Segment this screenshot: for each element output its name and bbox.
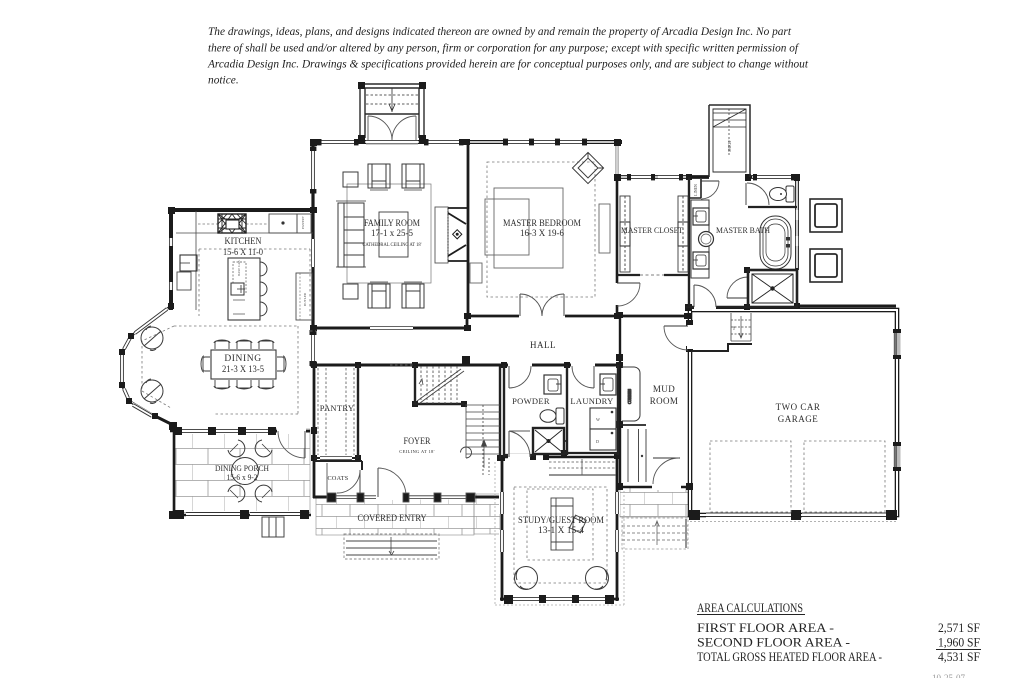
svg-text:DINING PORCH: DINING PORCH [215, 463, 269, 473]
svg-text:W: W [596, 417, 600, 422]
svg-text:FIRST FLOOR AREA -: FIRST FLOOR AREA - [697, 620, 834, 635]
svg-text:The drawings, ideas, plans, an: The drawings, ideas, plans, and designs … [208, 26, 792, 38]
svg-text:LAUNDRY: LAUNDRY [570, 396, 613, 406]
svg-text:CEILING AT 18': CEILING AT 18' [399, 449, 435, 454]
svg-text:LINEN: LINEN [694, 184, 698, 196]
svg-text:CUBBIES: CUBBIES [628, 389, 632, 404]
svg-text:HALL: HALL [530, 340, 556, 350]
svg-text:COATS: COATS [327, 475, 348, 482]
svg-text:STUDY/GUEST ROOM: STUDY/GUEST ROOM [518, 515, 604, 525]
svg-text:16-3 X 19-6: 16-3 X 19-6 [520, 228, 564, 238]
svg-text:BUTLER: BUTLER [303, 292, 307, 306]
svg-text:17-1 x 25-5: 17-1 x 25-5 [371, 228, 413, 238]
svg-text:1,960 SF: 1,960 SF [938, 635, 980, 650]
svg-text:COVERED ENTRY: COVERED ENTRY [358, 513, 427, 523]
svg-text:SECOND FLOOR AREA -: SECOND FLOOR AREA - [697, 635, 850, 650]
svg-text:notice.: notice. [208, 75, 239, 87]
svg-text:15-6 X 11-0: 15-6 X 11-0 [223, 247, 263, 257]
svg-text:AREA CALCULATIONS: AREA CALCULATIONS [697, 600, 803, 615]
svg-text:SHELF: SHELF [727, 139, 732, 152]
svg-text:Arcadia Design Inc. Drawings &: Arcadia Design Inc. Drawings & specifica… [207, 59, 809, 71]
svg-text:PANTRY: PANTRY [320, 403, 355, 413]
svg-text:13-1 X 15-4: 13-1 X 15-4 [538, 525, 585, 535]
svg-text:MASTER BATH: MASTER BATH [716, 226, 770, 235]
svg-text:15-6 x 9-2: 15-6 x 9-2 [227, 473, 258, 482]
svg-text:10-25-07: 10-25-07 [932, 673, 965, 678]
svg-text:CATHEDRAL CEILING AT 18': CATHEDRAL CEILING AT 18' [363, 242, 422, 248]
svg-text:DINING: DINING [224, 354, 261, 364]
svg-text:BASE CAB: BASE CAB [237, 261, 241, 277]
svg-text:PANTRY: PANTRY [301, 215, 305, 229]
svg-text:FOYER: FOYER [404, 436, 431, 446]
svg-text:6R: 6R [732, 325, 736, 330]
svg-text:4,531 SF: 4,531 SF [938, 649, 980, 664]
svg-text:MUD: MUD [653, 384, 675, 394]
svg-text:FAMILY ROOM: FAMILY ROOM [364, 218, 420, 228]
svg-text:D: D [596, 439, 599, 444]
svg-text:MASTER CLOSET: MASTER CLOSET [621, 226, 683, 235]
svg-text:TOTAL GROSS HEATED FLOOR AREA: TOTAL GROSS HEATED FLOOR AREA - [697, 649, 882, 664]
svg-text:KITCHEN: KITCHEN [225, 236, 262, 246]
svg-text:GARAGE: GARAGE [778, 414, 819, 424]
svg-text:MASTER BEDROOM: MASTER BEDROOM [503, 218, 581, 228]
svg-text:21-3 X 13-5: 21-3 X 13-5 [222, 364, 264, 374]
svg-text:POWDER: POWDER [512, 396, 550, 406]
svg-text:TWO CAR: TWO CAR [776, 402, 821, 412]
svg-text:2,571 SF: 2,571 SF [938, 620, 980, 635]
svg-text:there of shall be used and/or: there of shall be used and/or altered by… [208, 43, 800, 55]
svg-text:ROOM: ROOM [650, 396, 679, 406]
